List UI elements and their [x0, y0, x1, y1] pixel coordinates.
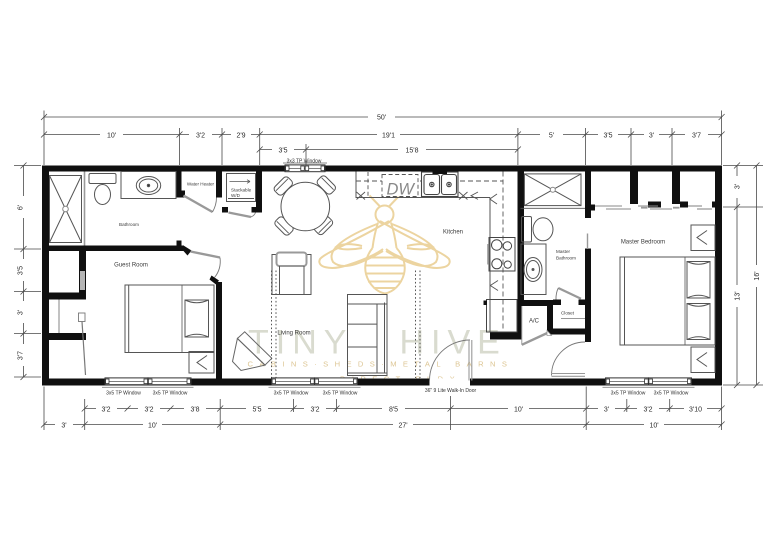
svg-text:Bathroom: Bathroom — [119, 222, 139, 227]
svg-text:2'9: 2'9 — [236, 133, 245, 140]
svg-text:Living Room: Living Room — [277, 331, 310, 337]
svg-text:3x5 TP Window: 3x5 TP Window — [274, 391, 309, 397]
svg-text:W/D: W/D — [231, 193, 241, 198]
svg-text:3'8: 3'8 — [190, 407, 199, 414]
svg-text:3'2: 3'2 — [101, 407, 110, 414]
svg-text:3'2: 3'2 — [643, 407, 652, 414]
svg-text:3x5 TP Window: 3x5 TP Window — [323, 391, 358, 397]
svg-text:10': 10' — [649, 423, 658, 430]
svg-text:A/C: A/C — [529, 319, 540, 325]
svg-text:DW: DW — [387, 181, 416, 199]
svg-text:3'2: 3'2 — [196, 133, 205, 140]
svg-text:3': 3' — [649, 133, 654, 140]
svg-text:TINY: TINY — [248, 324, 353, 362]
svg-text:3': 3' — [735, 184, 742, 189]
svg-text:3'5: 3'5 — [603, 133, 612, 140]
svg-text:8'5: 8'5 — [389, 407, 398, 414]
svg-text:36" 9 Lite Walk-In Door: 36" 9 Lite Walk-In Door — [425, 388, 477, 394]
svg-text:3x5 TP Window: 3x5 TP Window — [611, 391, 646, 397]
svg-text:3': 3' — [18, 310, 25, 315]
svg-text:3'5: 3'5 — [278, 148, 287, 155]
svg-text:3'7: 3'7 — [692, 133, 701, 140]
svg-text:10': 10' — [148, 423, 157, 430]
svg-text:5': 5' — [549, 133, 554, 140]
svg-text:3'5: 3'5 — [18, 266, 25, 275]
svg-text:3'7: 3'7 — [18, 351, 25, 360]
svg-text:15'8: 15'8 — [405, 148, 418, 155]
svg-text:3'10: 3'10 — [689, 407, 702, 414]
svg-text:5'5: 5'5 — [252, 407, 261, 414]
svg-text:Kitchen: Kitchen — [443, 230, 463, 236]
svg-text:3x3 TP Window: 3x3 TP Window — [287, 159, 322, 165]
svg-text:3'2: 3'2 — [144, 407, 153, 414]
svg-text:Closet: Closet — [561, 311, 575, 316]
svg-text:3'2: 3'2 — [310, 407, 319, 414]
svg-text:10': 10' — [514, 407, 523, 414]
svg-text:Water Heater: Water Heater — [187, 182, 215, 187]
svg-text:Guest Room: Guest Room — [114, 263, 148, 269]
svg-text:50': 50' — [377, 115, 386, 122]
svg-text:19'1: 19'1 — [382, 133, 395, 140]
svg-text:3x5 TP Window: 3x5 TP Window — [153, 391, 188, 397]
svg-text:Bathroom: Bathroom — [556, 256, 576, 261]
svg-text:10': 10' — [107, 133, 116, 140]
svg-text:3': 3' — [61, 423, 66, 430]
svg-text:3': 3' — [604, 407, 609, 414]
svg-text:Master: Master — [556, 249, 571, 254]
svg-text:HIVE: HIVE — [400, 324, 507, 362]
svg-text:6': 6' — [18, 205, 25, 210]
svg-text:3x5 TP Window: 3x5 TP Window — [654, 391, 689, 397]
svg-text:CABINS·SHEDS·METAL BARNS: CABINS·SHEDS·METAL BARNS — [248, 360, 514, 369]
svg-text:16': 16' — [754, 271, 761, 280]
svg-text:Stackable: Stackable — [231, 188, 252, 193]
svg-text:27': 27' — [398, 423, 407, 430]
svg-text:3x5 TP Window: 3x5 TP Window — [106, 391, 141, 397]
svg-text:Master Bedroom: Master Bedroom — [621, 240, 665, 246]
svg-text:13': 13' — [735, 291, 742, 300]
